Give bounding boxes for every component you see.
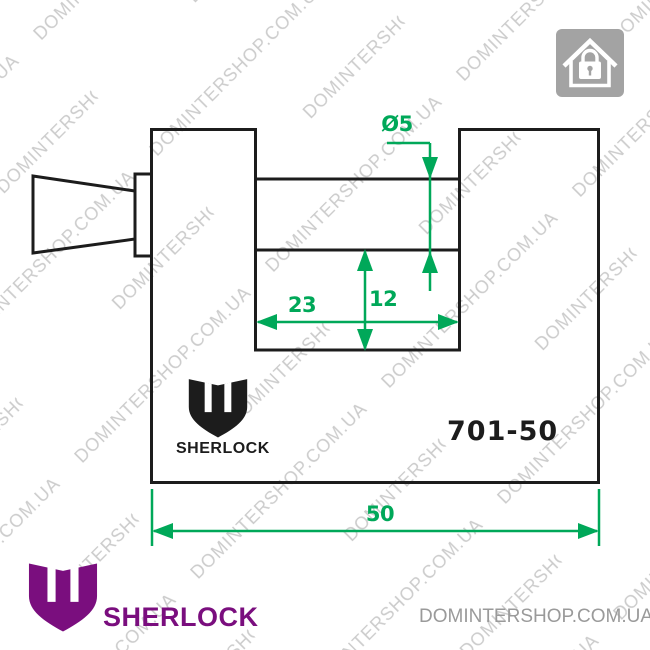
house-lock-icon xyxy=(556,29,624,97)
house-lock-glyph xyxy=(556,29,624,97)
dimension-label-slot-width: 23 xyxy=(288,293,316,317)
arrowhead-up xyxy=(422,251,438,273)
keyhole-stem xyxy=(589,70,591,76)
arrowhead-left xyxy=(152,523,173,539)
arrowhead-up xyxy=(357,249,373,271)
dimension-total-width: 50 xyxy=(152,489,599,546)
dimension-slot-depth: 12 xyxy=(357,249,397,351)
brand-name-footer: SHERLOCK xyxy=(103,602,259,633)
shield-slot-right xyxy=(224,382,231,412)
shield-shape xyxy=(189,379,247,437)
sherlock-shield-logo xyxy=(185,374,251,440)
cylinder-cone xyxy=(33,176,135,253)
technical-drawing: Ø5 23 12 50 xyxy=(0,0,650,650)
shield-slot-left xyxy=(205,382,212,412)
shield-slot-right xyxy=(70,567,78,602)
padlock-shackle xyxy=(583,51,597,63)
site-name: DOMINTERSHOP.COM.UA xyxy=(419,606,650,628)
brand-name-drawing: SHERLOCK xyxy=(176,440,262,458)
cylinder-collar xyxy=(135,174,152,256)
dimension-hole-diameter: Ø5 xyxy=(381,112,438,291)
sherlock-shield-logo-footer xyxy=(26,557,100,635)
dimension-slot-width: 23 xyxy=(256,293,459,330)
arrowhead-right xyxy=(438,314,459,330)
product-image: DOMINTERSHOP.COM.UA DOMINTERSHOP.COM.UA … xyxy=(0,0,650,650)
dimension-label-total-width: 50 xyxy=(366,502,394,526)
model-number: 701-50 xyxy=(447,416,558,447)
shield-shape xyxy=(29,563,97,631)
dimension-label-hole: Ø5 xyxy=(381,112,412,136)
arrowhead-down xyxy=(422,157,438,179)
dimension-label-slot-depth: 12 xyxy=(369,287,397,311)
arrowhead-right xyxy=(578,523,599,539)
arrowhead-down xyxy=(357,329,373,351)
arrowhead-left xyxy=(256,314,277,330)
shield-slot-left xyxy=(47,567,55,602)
